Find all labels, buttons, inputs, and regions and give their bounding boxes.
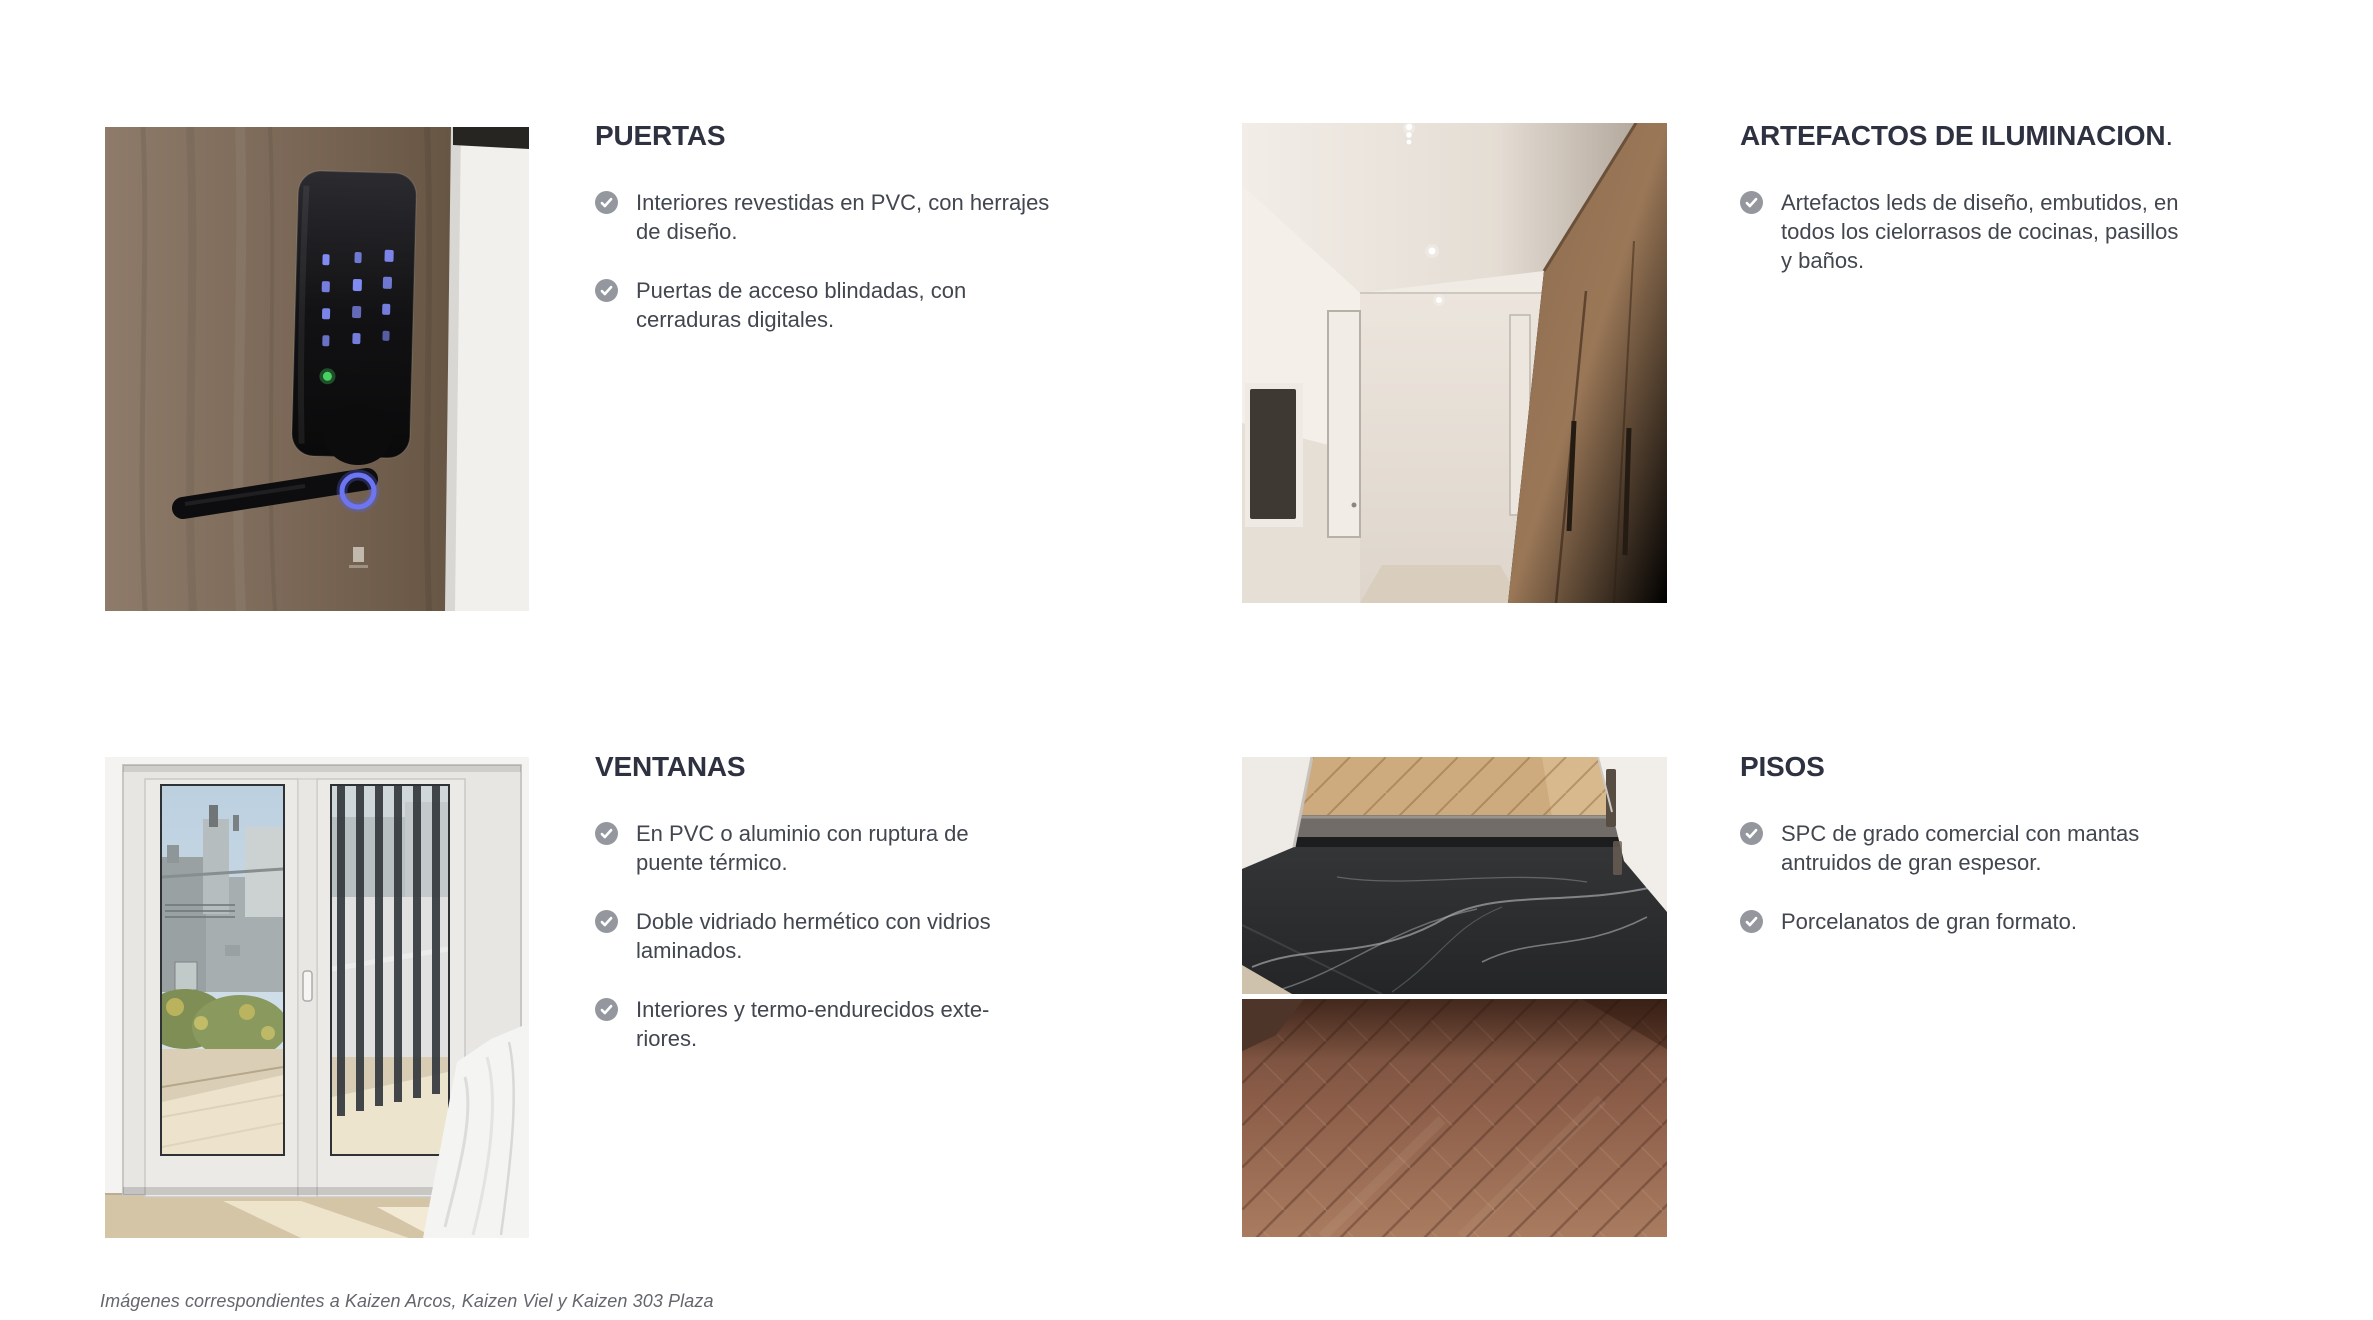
bullet-item: SPC de grado comercial con mantasantruid… [1740,819,2300,877]
bullet-line: antruidos de gran espesor. [1781,848,2139,877]
bullet-line: de diseño. [636,217,1049,246]
bullet-line: Artefactos leds de diseño, embutidos, en [1781,188,2178,217]
bullet-line: SPC de grado comercial con mantas [1781,819,2139,848]
door-lock-illustration [105,127,529,611]
section-title: PISOS [1740,749,2300,785]
section-artefactos-de-iluminacion: ARTEFACTOS DE ILUMINACION. Artefactos le… [1740,118,2300,305]
bullet-line: todos los cielorrasos de cocinas, pasill… [1781,217,2178,246]
spec-sheet-page: PUERTAS Interiores revestidas en PVC, co… [0,0,2373,1320]
bullet-line: En PVC o aluminio con ruptura de [636,819,969,848]
check-circle-icon [595,822,618,845]
hallway-photo [1242,123,1667,603]
bullet-line: riores. [636,1024,989,1053]
window-handle [303,971,312,1001]
bullet-item: Porcelanatos de gran formato. [1740,907,2300,936]
bullet-text: Puertas de acceso blindadas, concerradur… [636,276,966,334]
floors-photo-bottom [1242,999,1667,1237]
bullet-text: Interiores y termo-endurecidos exte-rior… [636,995,989,1053]
bullet-text: Artefactos leds de diseño, embutidos, en… [1781,188,2178,275]
check-circle-icon [595,998,618,1021]
check-circle-icon [595,279,618,302]
section-puertas: PUERTAS Interiores revestidas en PVC, co… [595,118,1155,364]
check-circle-icon [595,191,618,214]
image-credit-note: Imágenes correspondientes a Kaizen Arcos… [100,1291,714,1312]
bullet-item: Doble vidriado hermético con vidrioslami… [595,907,1155,965]
bullet-line: Porcelanatos de gran formato. [1781,907,2077,936]
bullet-item: Artefactos leds de diseño, embutidos, en… [1740,188,2300,275]
bullet-line: Interiores y termo-endurecidos exte- [636,995,989,1024]
bullet-line: cerraduras digitales. [636,305,966,334]
windows-photo [105,757,529,1238]
bullet-line: laminados. [636,936,991,965]
section-ventanas: VENTANAS En PVC o aluminio con ruptura d… [595,749,1155,1083]
hallway-illustration [1242,123,1667,603]
bullet-item: Interiores revestidas en PVC, con herraj… [595,188,1155,246]
check-circle-icon [1740,822,1763,845]
window-illustration [105,757,529,1238]
bullet-line: y baños. [1781,246,2178,275]
floors-photo [1242,757,1667,1237]
door-lock-photo [105,127,529,611]
section-title: PUERTAS [595,118,1155,154]
section-title: ARTEFACTOS DE ILUMINACION. [1740,118,2300,154]
bullet-list: En PVC o aluminio con ruptura depuente t… [595,819,1155,1053]
bullet-list: Interiores revestidas en PVC, con herraj… [595,188,1155,334]
left-glass-view [143,786,288,1154]
bullet-line: Interiores revestidas en PVC, con herraj… [636,188,1049,217]
floors-photo-top [1242,757,1667,994]
bullet-text: Porcelanatos de gran formato. [1781,907,2077,936]
bullet-text: En PVC o aluminio con ruptura depuente t… [636,819,969,877]
section-pisos: PISOS SPC de grado comercial con mantasa… [1740,749,2300,966]
bullet-text: Doble vidriado hermético con vidrioslami… [636,907,991,965]
bullet-list: Artefactos leds de diseño, embutidos, en… [1740,188,2300,275]
hall-floor [1360,565,1522,603]
wall-panel [1250,389,1296,519]
bullet-item: Interiores y termo-endurecidos exte-rior… [595,995,1155,1053]
check-circle-icon [1740,191,1763,214]
bullet-line: puente térmico. [636,848,969,877]
bullet-text: SPC de grado comercial con mantasantruid… [1781,819,2139,877]
marble-floor-illustration [1242,757,1667,994]
bullet-list: SPC de grado comercial con mantasantruid… [1740,819,2300,936]
bullet-item: Puertas de acceso blindadas, concerradur… [595,276,1155,334]
bullet-line: Puertas de acceso blindadas, con [636,276,966,305]
bullet-item: En PVC o aluminio con ruptura depuente t… [595,819,1155,877]
check-circle-icon [595,910,618,933]
check-circle-icon [1740,910,1763,933]
bullet-text: Interiores revestidas en PVC, con herraj… [636,188,1049,246]
handle-base [324,405,392,465]
bullet-line: Doble vidriado hermético con vidrios [636,907,991,936]
herringbone-floor-illustration [1242,999,1667,1237]
section-title: VENTANAS [595,749,1155,785]
right-glass-view [332,786,448,1154]
